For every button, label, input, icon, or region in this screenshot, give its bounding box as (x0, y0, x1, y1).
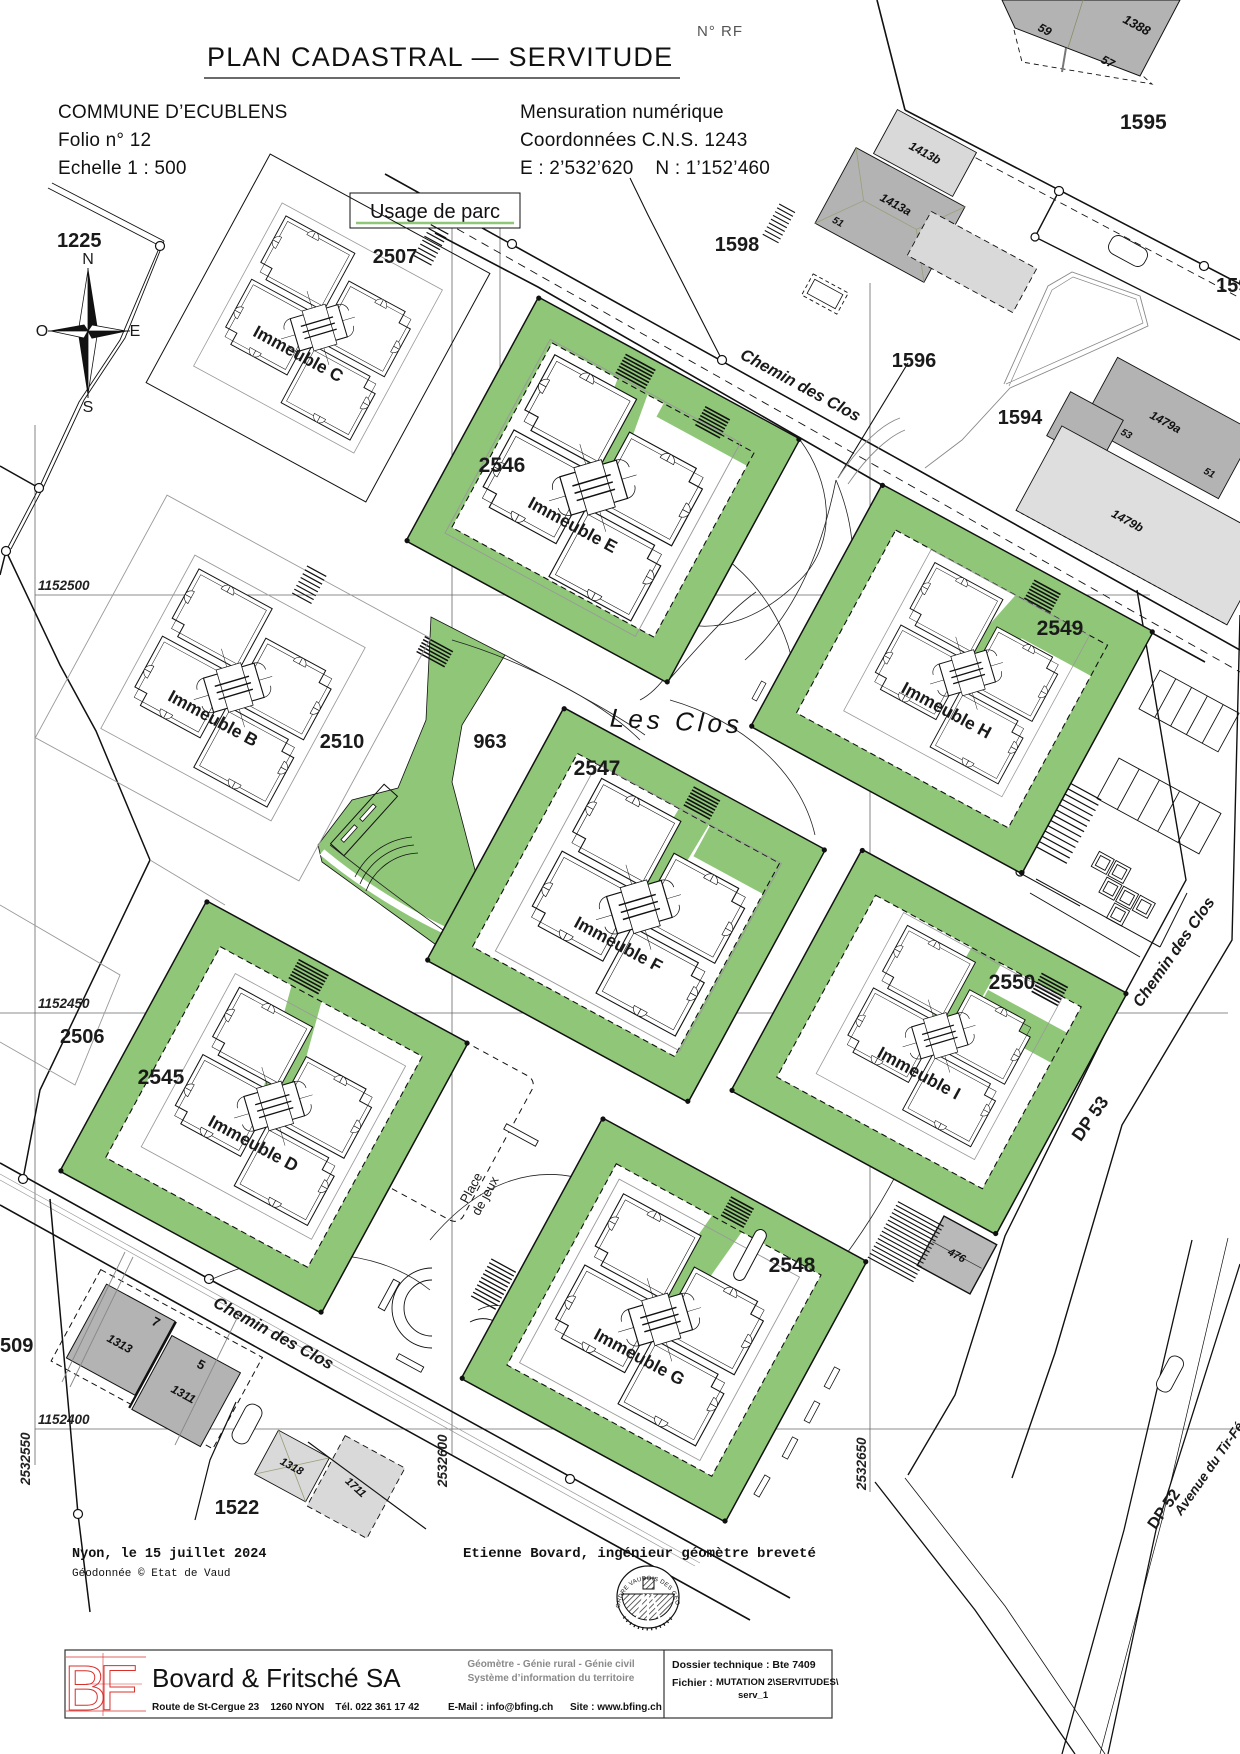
svg-text:Mensuration numérique: Mensuration numérique (520, 102, 724, 123)
svg-text:E: E (130, 323, 141, 340)
svg-text:Route de St-Cergue 23 1260: Route de St-Cergue 23 1260 NYON Tél. 022… (152, 1702, 420, 1713)
svg-text:Bovard & Fritsché SA: Bovard & Fritsché SA (152, 1663, 401, 1693)
svg-text:Dossier technique : Bte 7409: Dossier technique : Bte 7409 (672, 1659, 816, 1671)
svg-text:Echelle 1 : 500: Echelle 1 : 500 (58, 158, 187, 179)
svg-text:Nyon, le 15 juillet 2024: Nyon, le 15 juillet 2024 (72, 1547, 266, 1562)
svg-text:serv_1: serv_1 (738, 1690, 769, 1701)
svg-text:1152450: 1152450 (38, 996, 90, 1011)
svg-text:Géomètre - Génie rural - Génie: Géomètre - Génie rural - Génie civil (467, 1659, 635, 1670)
svg-text:Géodonnée © Etat de Vaud: Géodonnée © Etat de Vaud (72, 1568, 230, 1580)
svg-text:2546: 2546 (479, 454, 526, 477)
svg-text:E-Mail : info@bfing.ch Si: E-Mail : info@bfing.ch Site : www.bfing.… (448, 1702, 662, 1713)
svg-text:2532600: 2532600 (435, 1434, 450, 1488)
svg-text:1225: 1225 (57, 230, 102, 252)
svg-text:2510: 2510 (320, 731, 365, 753)
svg-text:2550: 2550 (989, 971, 1036, 994)
svg-text:MUTATION 2\SERVITUDES\: MUTATION 2\SERVITUDES\ (716, 1677, 839, 1688)
svg-text:1596: 1596 (892, 350, 937, 372)
svg-text:1152500: 1152500 (38, 578, 90, 593)
svg-text:2532550: 2532550 (18, 1432, 33, 1486)
svg-text:Usage de parc: Usage de parc (370, 201, 500, 223)
svg-text:N: N (82, 251, 94, 268)
svg-text:Folio n° 12: Folio n° 12 (58, 130, 151, 151)
svg-text:Coordonnées C.N.S. 1243: Coordonnées C.N.S. 1243 (520, 130, 747, 151)
svg-text:509: 509 (0, 1335, 33, 1357)
svg-text:COMMUNE D’ECUBLENS: COMMUNE D’ECUBLENS (58, 102, 288, 123)
svg-text:Fichier :: Fichier : (672, 1677, 713, 1689)
svg-text:2548: 2548 (769, 1254, 816, 1277)
svg-text:2506: 2506 (60, 1026, 105, 1048)
svg-text:Etienne Bovard, ingénieur géom: Etienne Bovard, ingénieur géomètre breve… (463, 1546, 816, 1562)
svg-text:Système d’information du terri: Système d’information du territoire (468, 1673, 635, 1684)
svg-text:2507: 2507 (373, 246, 418, 268)
svg-text:1595: 1595 (1120, 111, 1167, 134)
svg-text:S: S (83, 399, 94, 416)
svg-text:2549: 2549 (1037, 617, 1084, 640)
svg-text:O: O (36, 323, 48, 340)
svg-text:2532650: 2532650 (854, 1437, 869, 1491)
svg-text:963: 963 (473, 731, 506, 753)
svg-text:N° RF: N° RF (697, 23, 743, 40)
svg-text:1594: 1594 (998, 407, 1043, 429)
svg-text:E : 2’532’620 N : 1’152’460: E : 2’532’620 N : 1’152’460 (520, 158, 770, 179)
svg-text:2547: 2547 (574, 757, 621, 780)
svg-text:PLAN CADASTRAL — SERVITUDE: PLAN CADASTRAL — SERVITUDE (207, 42, 673, 72)
svg-text:159: 159 (1216, 275, 1240, 297)
svg-text:2545: 2545 (138, 1066, 185, 1089)
svg-text:1598: 1598 (715, 234, 760, 256)
svg-text:1152400: 1152400 (38, 1412, 90, 1427)
svg-text:1522: 1522 (215, 1497, 260, 1519)
svg-text:BF: BF (64, 1652, 136, 1724)
